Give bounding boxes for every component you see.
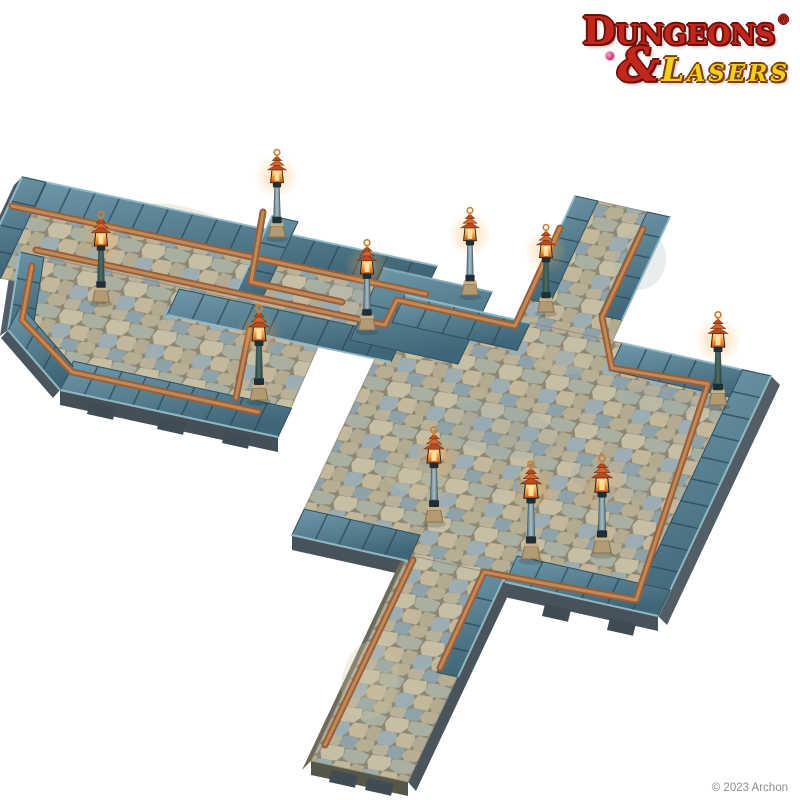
- finial-ring: [364, 240, 370, 246]
- finial-ring: [715, 312, 721, 318]
- brand-word-lasers: &Lasers: [540, 42, 790, 89]
- product-photo: Dungeons® &Lasers © 2023 Archon: [0, 0, 800, 800]
- amp-gem-icon: [606, 52, 614, 60]
- registered-mark-icon: ®: [777, 13, 790, 28]
- brand-word-lasers-text: Lasers: [661, 50, 790, 89]
- terrain-illustration: [0, 0, 800, 800]
- brand-ampersand: &: [618, 38, 660, 93]
- copyright-notice: © 2023 Archon: [712, 782, 788, 794]
- brand-logo: Dungeons® &Lasers: [540, 12, 790, 89]
